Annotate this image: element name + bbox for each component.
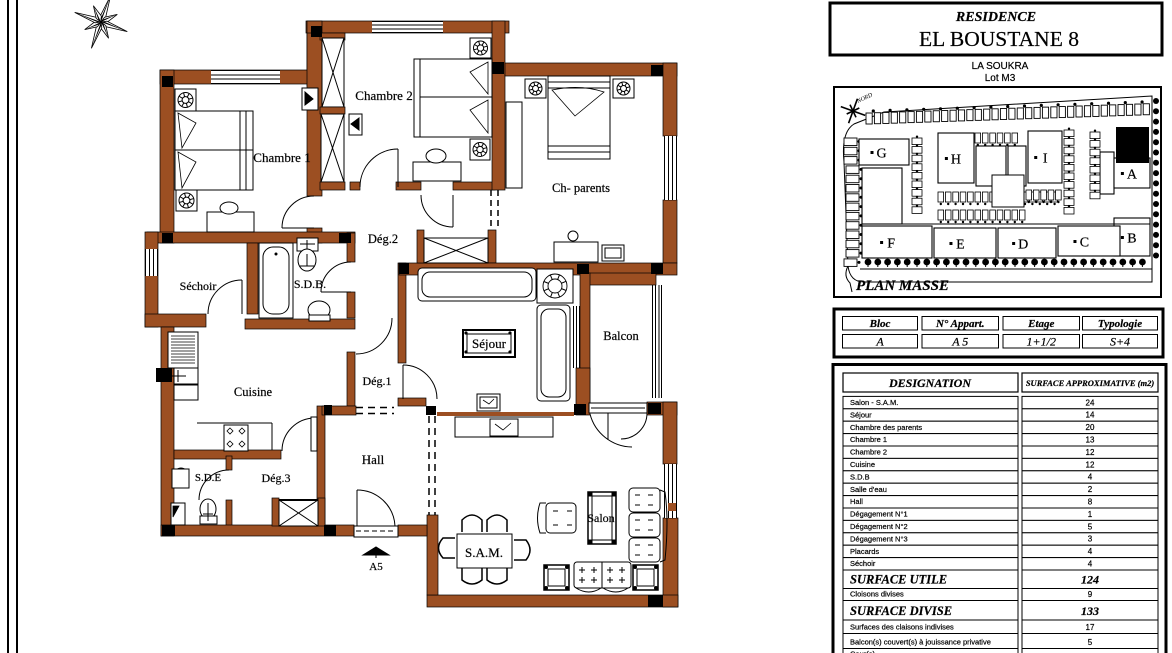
svg-text:Séchoir: Séchoir: [850, 559, 876, 568]
svg-text:Balcon(s) couvert(s) à joui: Balcon(s) couvert(s) à jouissance privat…: [850, 638, 991, 647]
svg-text:N° Appart.: N° Appart.: [935, 318, 985, 330]
svg-text:SURFACE APPROXIMATIVE (m2): SURFACE APPROXIMATIVE (m2): [1026, 378, 1154, 388]
svg-text:Chambre 1: Chambre 1: [850, 435, 887, 444]
svg-text:Etage: Etage: [1027, 318, 1054, 330]
svg-text:Chambre des parents: Chambre des parents: [850, 423, 922, 432]
svg-text:Dég.3: Dég.3: [262, 471, 291, 485]
svg-text:2: 2: [1088, 485, 1093, 494]
svg-text:S.D.B.: S.D.B.: [294, 277, 326, 291]
svg-text:A5: A5: [369, 561, 383, 573]
svg-text:1+1/2: 1+1/2: [1027, 335, 1056, 349]
svg-text:Séchoir: Séchoir: [180, 279, 217, 293]
svg-text:Salon: Salon: [587, 511, 614, 525]
svg-text:24: 24: [1086, 398, 1095, 407]
svg-text:124: 124: [1081, 573, 1099, 587]
svg-text:Lot M3: Lot M3: [985, 73, 1016, 84]
svg-text:I: I: [1043, 152, 1048, 167]
svg-text:EL BOUSTANE 8: EL BOUSTANE 8: [919, 27, 1079, 51]
svg-text:Dégagement N°1: Dégagement N°1: [850, 510, 908, 519]
svg-text:1: 1: [1088, 510, 1093, 519]
svg-text:D: D: [1018, 238, 1028, 253]
svg-text:Cloisons divises: Cloisons divises: [850, 590, 904, 599]
svg-text:Balcon: Balcon: [603, 329, 639, 343]
svg-text:133: 133: [1081, 604, 1099, 618]
svg-text:S.D.E: S.D.E: [195, 472, 222, 484]
svg-text:9: 9: [1088, 590, 1093, 599]
svg-text:Chambre 2: Chambre 2: [355, 88, 412, 103]
svg-text:S.A.M.: S.A.M.: [465, 545, 503, 560]
svg-text:3: 3: [1088, 535, 1093, 544]
svg-text:Hall: Hall: [850, 497, 863, 506]
svg-text:Salle d'eau: Salle d'eau: [850, 485, 887, 494]
svg-text:4: 4: [1088, 560, 1093, 569]
svg-text:4: 4: [1088, 473, 1093, 482]
svg-text:17: 17: [1086, 623, 1095, 632]
svg-text:A: A: [1127, 168, 1138, 183]
svg-text:A: A: [875, 335, 884, 349]
svg-text:Dégagement N°3: Dégagement N°3: [850, 534, 908, 543]
svg-text:4: 4: [1088, 547, 1093, 556]
svg-text:PLAN MASSE: PLAN MASSE: [856, 278, 949, 294]
svg-text:S.D.B: S.D.B: [850, 472, 870, 481]
svg-text:C: C: [1080, 236, 1089, 251]
svg-text:20: 20: [1086, 423, 1095, 432]
svg-text:Dégagement N°2: Dégagement N°2: [850, 522, 908, 531]
svg-text:F: F: [887, 237, 895, 252]
svg-text:Ch- parents: Ch- parents: [552, 181, 610, 195]
svg-text:RESIDENCE: RESIDENCE: [955, 10, 1036, 25]
svg-text:12: 12: [1086, 448, 1095, 457]
svg-text:Chambre 2: Chambre 2: [850, 448, 887, 457]
svg-text:Cuisine: Cuisine: [850, 460, 875, 469]
svg-text:A 5: A 5: [951, 335, 968, 349]
svg-text:Surfaces des claisons indiv: Surfaces des claisons indivises: [850, 623, 954, 632]
svg-text:H: H: [951, 153, 961, 168]
svg-text:Séjour: Séjour: [472, 336, 507, 351]
svg-text:Chambre 1: Chambre 1: [253, 150, 310, 165]
svg-text:8: 8: [1088, 498, 1093, 507]
svg-text:S+4: S+4: [1110, 335, 1130, 349]
svg-text:Dég.2: Dég.2: [368, 232, 398, 246]
svg-text:B: B: [1127, 232, 1136, 247]
svg-text:Cuisine: Cuisine: [234, 385, 273, 399]
svg-text:DESIGNATION: DESIGNATION: [888, 376, 972, 390]
svg-text:SURFACE DIVISE: SURFACE DIVISE: [850, 604, 952, 618]
svg-text:LA SOUKRA: LA SOUKRA: [972, 61, 1029, 72]
svg-text:12: 12: [1086, 460, 1095, 469]
svg-text:Salon - S.A.M.: Salon - S.A.M.: [850, 398, 898, 407]
svg-text:5: 5: [1088, 522, 1093, 531]
svg-text:SURFACE UTILE: SURFACE UTILE: [850, 573, 947, 587]
svg-text:14: 14: [1086, 411, 1095, 420]
svg-text:13: 13: [1086, 436, 1095, 445]
svg-text:Bloc: Bloc: [869, 318, 891, 330]
svg-text:5: 5: [1088, 638, 1093, 647]
svg-text:Typologie: Typologie: [1098, 318, 1142, 330]
svg-text:Dég.1: Dég.1: [363, 374, 392, 388]
svg-text:Séjour: Séjour: [850, 410, 872, 419]
svg-text:Placards: Placards: [850, 547, 879, 556]
svg-text:G: G: [876, 147, 886, 162]
svg-text:E: E: [956, 238, 965, 253]
svg-text:Hall: Hall: [362, 452, 385, 467]
